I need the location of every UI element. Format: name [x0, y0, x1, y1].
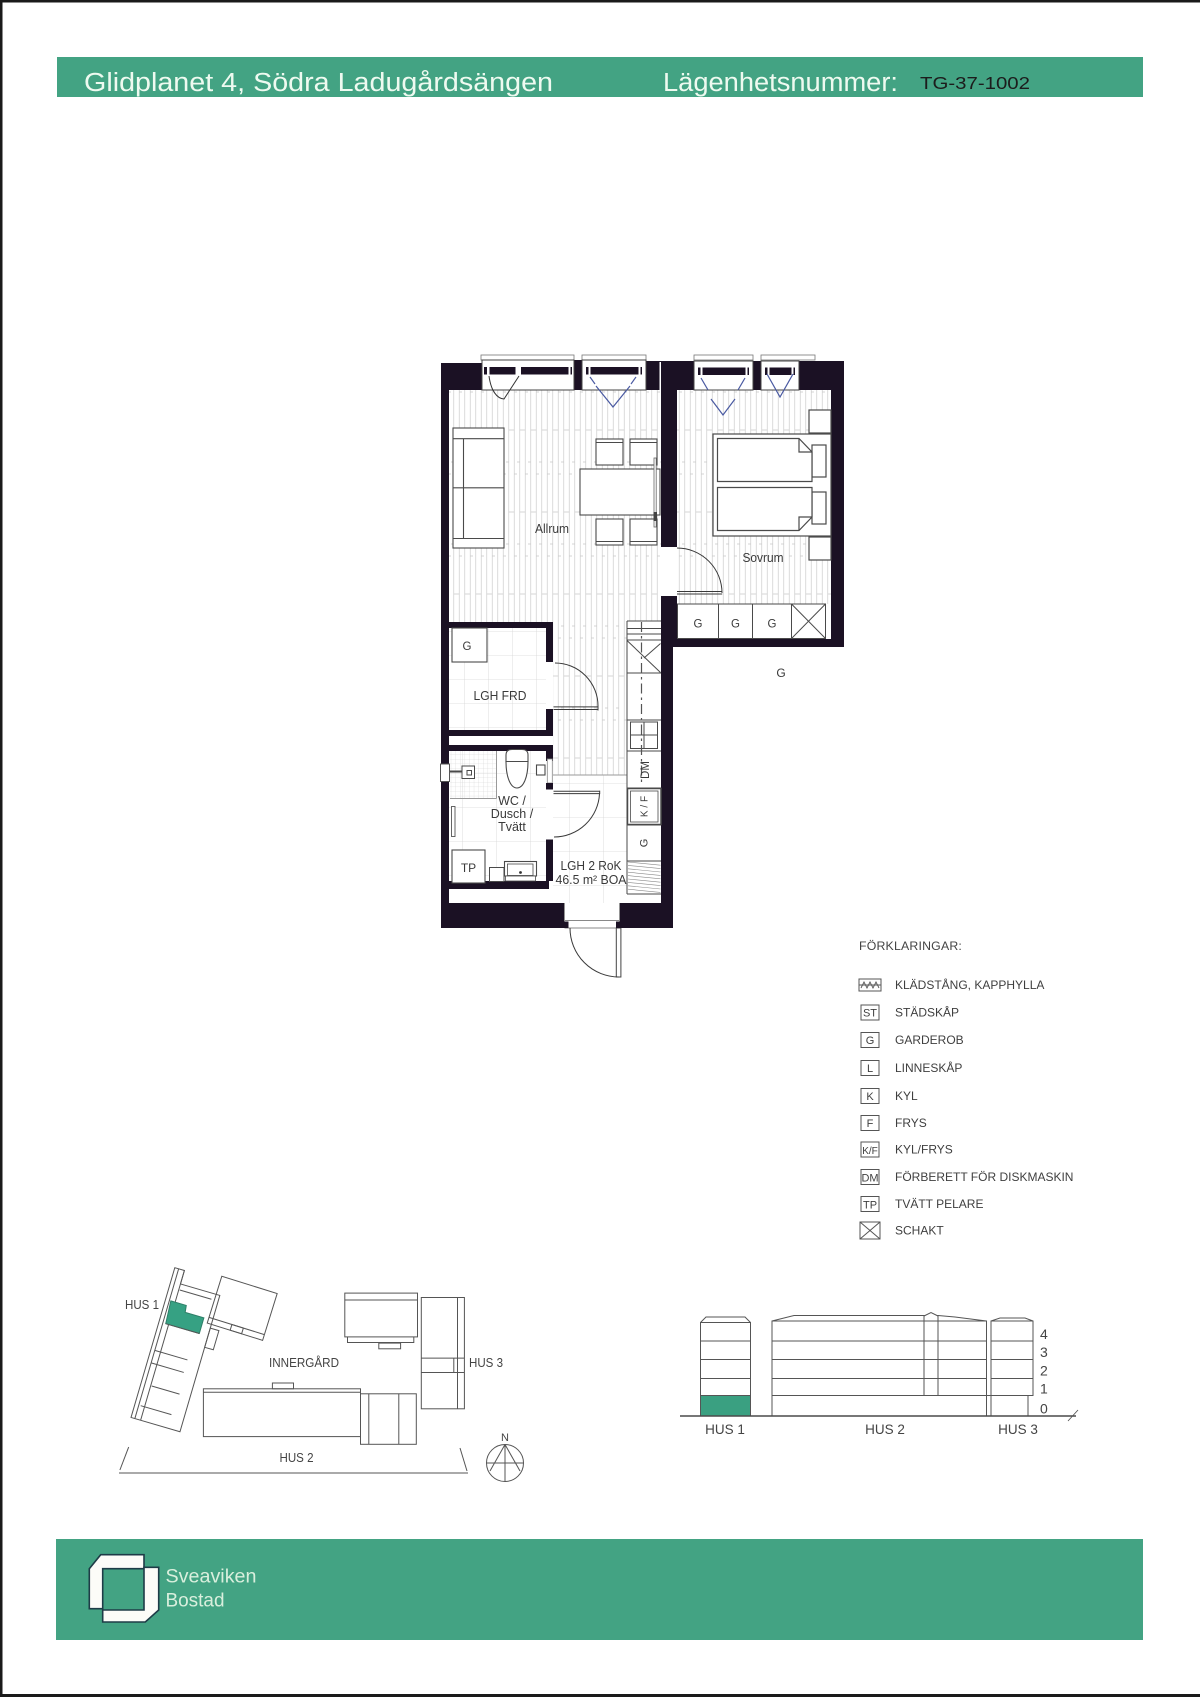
- svg-text:TP: TP: [863, 1200, 877, 1212]
- svg-text:Dusch /: Dusch /: [491, 807, 534, 821]
- svg-text:GARDEROB: GARDEROB: [895, 1033, 964, 1047]
- svg-text:DM: DM: [640, 761, 652, 779]
- svg-text:WC /: WC /: [498, 794, 526, 808]
- svg-text:LINNESKÅP: LINNESKÅP: [895, 1060, 962, 1075]
- svg-text:G: G: [694, 619, 703, 631]
- svg-text:LGH FRD: LGH FRD: [474, 689, 527, 703]
- svg-text:FRYS: FRYS: [895, 1116, 927, 1130]
- svg-text:TP: TP: [461, 861, 476, 875]
- svg-text:Allrum: Allrum: [535, 522, 569, 536]
- svg-text:KYL/FRYS: KYL/FRYS: [895, 1143, 953, 1157]
- svg-text:1: 1: [1040, 1381, 1048, 1397]
- svg-text:G: G: [866, 1035, 875, 1047]
- svg-text:HUS 2: HUS 2: [280, 1450, 314, 1465]
- svg-text:G: G: [731, 619, 740, 631]
- svg-text:HUS 3: HUS 3: [469, 1355, 503, 1370]
- svg-text:Sveaviken: Sveaviken: [166, 1567, 257, 1588]
- svg-text:G: G: [639, 839, 651, 848]
- svg-text:Sovrum: Sovrum: [743, 551, 784, 565]
- svg-text:46.5 m² BOA: 46.5 m² BOA: [556, 873, 628, 887]
- svg-text:LGH 2 RoK: LGH 2 RoK: [561, 859, 623, 873]
- svg-text:STÄDSKÅP: STÄDSKÅP: [895, 1005, 959, 1020]
- svg-text:Lägenhetsnummer:: Lägenhetsnummer:: [663, 69, 898, 97]
- svg-text:K: K: [866, 1091, 874, 1103]
- svg-text:ST: ST: [863, 1008, 877, 1020]
- svg-text:G: G: [776, 666, 785, 680]
- svg-text:G: G: [768, 619, 777, 631]
- svg-text:DM: DM: [861, 1173, 878, 1185]
- svg-text:4: 4: [1040, 1326, 1048, 1342]
- svg-text:HUS 1: HUS 1: [705, 1422, 745, 1437]
- svg-text:INNERGÅRD: INNERGÅRD: [269, 1355, 339, 1370]
- svg-text:Bostad: Bostad: [166, 1591, 225, 1612]
- svg-text:N: N: [501, 1432, 509, 1444]
- svg-text:3: 3: [1040, 1344, 1048, 1360]
- svg-text:KYL: KYL: [895, 1089, 918, 1103]
- svg-text:2: 2: [1040, 1363, 1048, 1379]
- svg-text:Glidplanet 4, Södra Ladugårdsä: Glidplanet 4, Södra Ladugårdsängen: [84, 69, 553, 97]
- svg-text:TG-37-1002: TG-37-1002: [920, 73, 1030, 93]
- svg-text:0: 0: [1040, 1401, 1048, 1417]
- svg-text:SCHAKT: SCHAKT: [895, 1224, 944, 1238]
- svg-text:K/F: K/F: [862, 1146, 878, 1157]
- svg-text:KLÄDSTÅNG, KAPPHYLLA: KLÄDSTÅNG, KAPPHYLLA: [895, 977, 1044, 992]
- svg-text:Tvätt: Tvätt: [498, 820, 526, 834]
- svg-text:TVÄTT PELARE: TVÄTT PELARE: [895, 1197, 983, 1211]
- svg-text:FÖRBERETT FÖR DISKMASKIN: FÖRBERETT FÖR DISKMASKIN: [895, 1170, 1073, 1184]
- svg-text:FÖRKLARINGAR:: FÖRKLARINGAR:: [859, 939, 962, 953]
- svg-text:HUS 1: HUS 1: [125, 1297, 159, 1312]
- svg-text:HUS 2: HUS 2: [865, 1422, 905, 1437]
- svg-text:K / F: K / F: [640, 796, 651, 817]
- svg-text:HUS 3: HUS 3: [998, 1422, 1038, 1437]
- svg-text:G: G: [463, 641, 472, 653]
- svg-text:L: L: [867, 1063, 873, 1075]
- svg-text:F: F: [867, 1118, 874, 1130]
